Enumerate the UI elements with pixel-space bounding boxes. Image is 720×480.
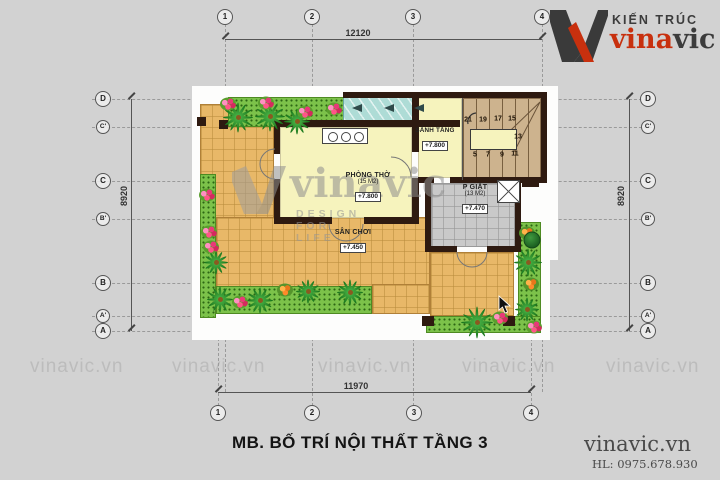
dim-line-right [629,99,630,331]
room-label-p-giat: P GIẶT (13 M2) +7.470 [446,184,504,215]
flower-cluster-icon [232,296,248,309]
stair-number: 19 [479,117,487,124]
logo-brand-red: vina [610,24,673,55]
flower-cluster-icon [277,284,293,297]
watermark-tile: vinavic.vn [318,356,411,378]
stair-edge-line [462,98,463,180]
room-level-badge: +7.800 [355,192,381,202]
grid-bubble-B': B' [641,212,655,226]
flower-cluster-icon [523,278,539,291]
vinavic-logo-icon [232,166,288,216]
grid-bubble-C': C' [641,120,655,134]
palm-trunk [258,298,263,303]
grid-bubble-4: 4 [523,405,539,421]
floor-plan-sheet: vinavic.vnvinavic.vnvinavic.vnvinavic.vn… [0,0,720,480]
stair-number: 21 [464,117,472,124]
grid-bubble-C: C [95,173,111,189]
room-level-badge: +7.800 [422,141,448,151]
grid-bubble-A': A' [641,309,655,323]
watermark-tile: vinavic.vn [606,356,699,378]
grid-bubble-D: D [95,91,111,107]
column [197,117,206,126]
mouse-cursor-icon [498,295,511,314]
terrace-san-choi-ext [372,284,430,314]
room-label-sanh-tang: SẢNH TẦNG +7.800 [410,127,460,152]
watermark-tile: vinavic.vn [30,356,123,378]
door-arc-laundry [456,252,488,269]
dim-line-left [131,99,132,331]
column [422,316,434,326]
dim-top-value: 12120 [345,28,370,38]
dim-right-value: 8920 [616,186,626,206]
room-label-phong-tho: PHÒNG THỜ (15 M2) +7.800 [330,172,406,203]
altar-bowl [328,132,338,142]
palm-trunk [525,307,530,312]
room-name: SÂN CHƠI [322,229,384,236]
palm-trunk [214,260,219,265]
grid-bubble-C': C' [96,120,110,134]
altar-bowl [354,132,364,142]
palm-trunk [475,320,480,325]
room-area: (15 M2) [330,179,406,185]
vinavic-logo-icon [548,8,608,62]
grid-bubble-3: 3 [406,405,422,421]
palm-trunk [295,119,300,124]
stair-number: 17 [494,116,502,123]
grid-bubble-C: C [640,173,656,189]
skylight-arrow-icon [414,104,424,112]
grid-bubble-A: A [640,323,656,339]
stair-number: 9 [500,152,504,159]
stair-number: 13 [514,134,522,141]
footer-site: vinavic.vn [584,432,691,456]
grid-bubble-3: 3 [405,9,421,25]
flower-cluster-icon [526,321,542,334]
room-name: P GIẶT [446,184,504,191]
grid-bubble-B: B [640,275,656,291]
flower-cluster-icon [258,97,274,110]
flower-cluster-icon [220,98,236,111]
wall-segment [364,217,419,224]
room-name: SẢNH TẦNG [410,127,460,134]
stair-number: 15 [508,116,516,123]
palm-trunk [526,260,531,265]
grid-bubble-2: 2 [304,405,320,421]
skylight-arrow-icon [352,104,362,112]
utility-box [522,179,539,187]
palm-trunk [268,114,273,119]
wall-segment [487,246,521,252]
grid-bubble-1: 1 [217,9,233,25]
altar-table [322,128,368,144]
stair-number: 5 [473,152,477,159]
flower-cluster-icon [199,189,215,202]
logo-brand: vinavic [610,25,715,55]
bush-icon [524,232,541,249]
drawing-title: MB. BỐ TRÍ NỘI THẤT TẦNG 3 [232,433,488,453]
flower-cluster-icon [326,103,342,116]
stair-number: 11 [511,151,518,158]
palm-trunk [218,297,223,302]
stair-number: 7 [486,152,490,159]
altar-bowl [341,132,351,142]
wall-segment [425,246,457,252]
dim-line-bottom [218,392,531,393]
room-area: (13 M2) [446,191,504,197]
skylight-arrow-icon [384,104,394,112]
dim-left-value: 8920 [119,186,129,206]
grid-bubble-A: A [95,323,111,339]
grid-bubble-A': A' [96,309,110,323]
grid-bubble-B: B [95,275,111,291]
grid-line-col-4b [531,338,532,406]
flower-cluster-icon [203,241,219,254]
logo-brand-dark: vic [673,24,715,55]
room-name: PHÒNG THỜ [330,172,406,179]
vinavic-logo: KIẾN TRÚC vinavic [548,6,718,64]
dim-bottom-value: 11970 [344,381,369,391]
room-level-badge: +7.450 [340,243,366,253]
grid-bubble-2: 2 [304,9,320,25]
palm-trunk [348,290,353,295]
stair-void [470,129,517,150]
palm-trunk [306,289,311,294]
palm-trunk [236,115,241,120]
dim-line-top [225,39,542,40]
room-label-san-choi: SÂN CHƠI +7.450 [322,229,384,254]
room-level-badge: +7.470 [462,204,488,214]
flower-cluster-icon [297,106,313,119]
grid-bubble-B': B' [96,212,110,226]
flower-cluster-icon [201,226,217,239]
footer-hotline: HL: 0975.678.930 [592,457,698,471]
grid-line-col-1b [218,338,219,406]
grid-bubble-1: 1 [210,405,226,421]
grid-bubble-D: D [640,91,656,107]
